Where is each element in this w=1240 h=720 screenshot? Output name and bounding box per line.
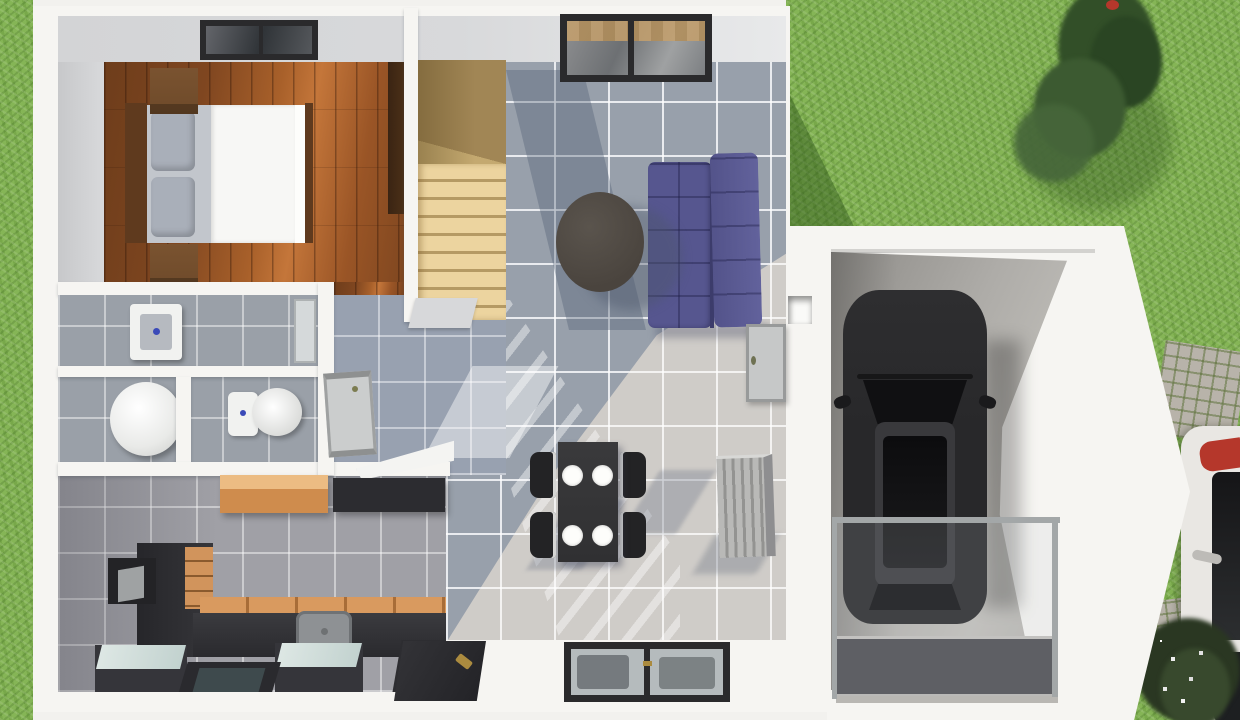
floor-plan-render (0, 0, 1240, 720)
window-reflection (659, 657, 715, 689)
bed-pillow (151, 111, 195, 171)
glass-railing-post (1052, 517, 1058, 697)
west-wall-inner-face (58, 62, 104, 284)
glass-railing-pane (834, 522, 1058, 696)
nightstand (150, 68, 198, 114)
dining-chair (530, 512, 556, 558)
coffee-table (556, 192, 644, 292)
bedroom-south-wall (58, 282, 320, 295)
dining-window-south (564, 642, 730, 702)
shrub-flowers (1160, 640, 1162, 642)
bedroom-skylight-window (200, 20, 318, 60)
window-divider (644, 649, 650, 695)
shrub (1160, 648, 1230, 720)
radiator (716, 454, 776, 558)
appliance-glass (96, 645, 186, 669)
plate (592, 465, 613, 486)
tree-canopy (1014, 104, 1094, 182)
bed-foot-rail (305, 103, 313, 243)
living-window-north (560, 14, 712, 82)
hallway-door-handle (352, 386, 358, 392)
garage-top-wall-edge (827, 249, 1095, 253)
south-wall-band-kitchen (58, 692, 448, 712)
wall-niche (788, 296, 812, 324)
toilet-flush-button (240, 410, 246, 416)
glass-railing-post (832, 517, 837, 699)
bedroom-doorway-floor (334, 282, 404, 296)
staircase-landing (408, 298, 477, 328)
toilet-bowl (252, 388, 302, 436)
dining-chair (530, 452, 556, 498)
kitchen-appliance-glass-top (275, 643, 363, 692)
garage-door-handle (751, 356, 756, 365)
bed-duvet (211, 105, 295, 243)
glass-railing-top-bar (832, 517, 1060, 523)
bed-pillow (151, 177, 195, 237)
round-bathtub (110, 382, 182, 456)
kitchen-tv-screen (118, 566, 144, 603)
glass-door-panel (294, 299, 316, 363)
bath-north-wall (58, 366, 320, 377)
kitchen-wall-cabinet-dark (333, 478, 445, 512)
kitchen-appliance-glass-top (95, 645, 187, 695)
lawn-top-right (786, 0, 1240, 252)
sofa-back-section (710, 152, 763, 327)
plate (592, 525, 613, 546)
kitchen-wall-cabinet-orange (220, 475, 328, 513)
shower-tray (130, 304, 182, 360)
plate (562, 465, 583, 486)
entrance-door (394, 641, 486, 701)
sink-drain (321, 628, 328, 635)
shower-drain (153, 328, 160, 335)
appliance-glass (276, 643, 362, 667)
tree-red-flower (1106, 0, 1119, 10)
bath-wc-divider-wall (176, 377, 191, 467)
hallway-door (323, 370, 377, 457)
window-divider (628, 21, 634, 75)
staircase-winder-shadow (418, 60, 506, 164)
dining-chair (620, 512, 646, 558)
lawn-left-strip (0, 0, 33, 720)
skylight-divider (259, 26, 263, 54)
dining-chair (620, 452, 646, 498)
window-wood-reflection (567, 21, 705, 41)
utility-room-floor (58, 295, 320, 373)
window-reflection (577, 655, 629, 689)
staircase-flight (418, 164, 506, 320)
car-windshield (863, 380, 967, 424)
bed-headboard (125, 103, 147, 243)
window-handle (643, 661, 652, 666)
stairwell-wall (404, 8, 418, 322)
plate (562, 525, 583, 546)
vehicle-red-detail (1198, 437, 1240, 473)
car-hood-line (857, 374, 973, 379)
